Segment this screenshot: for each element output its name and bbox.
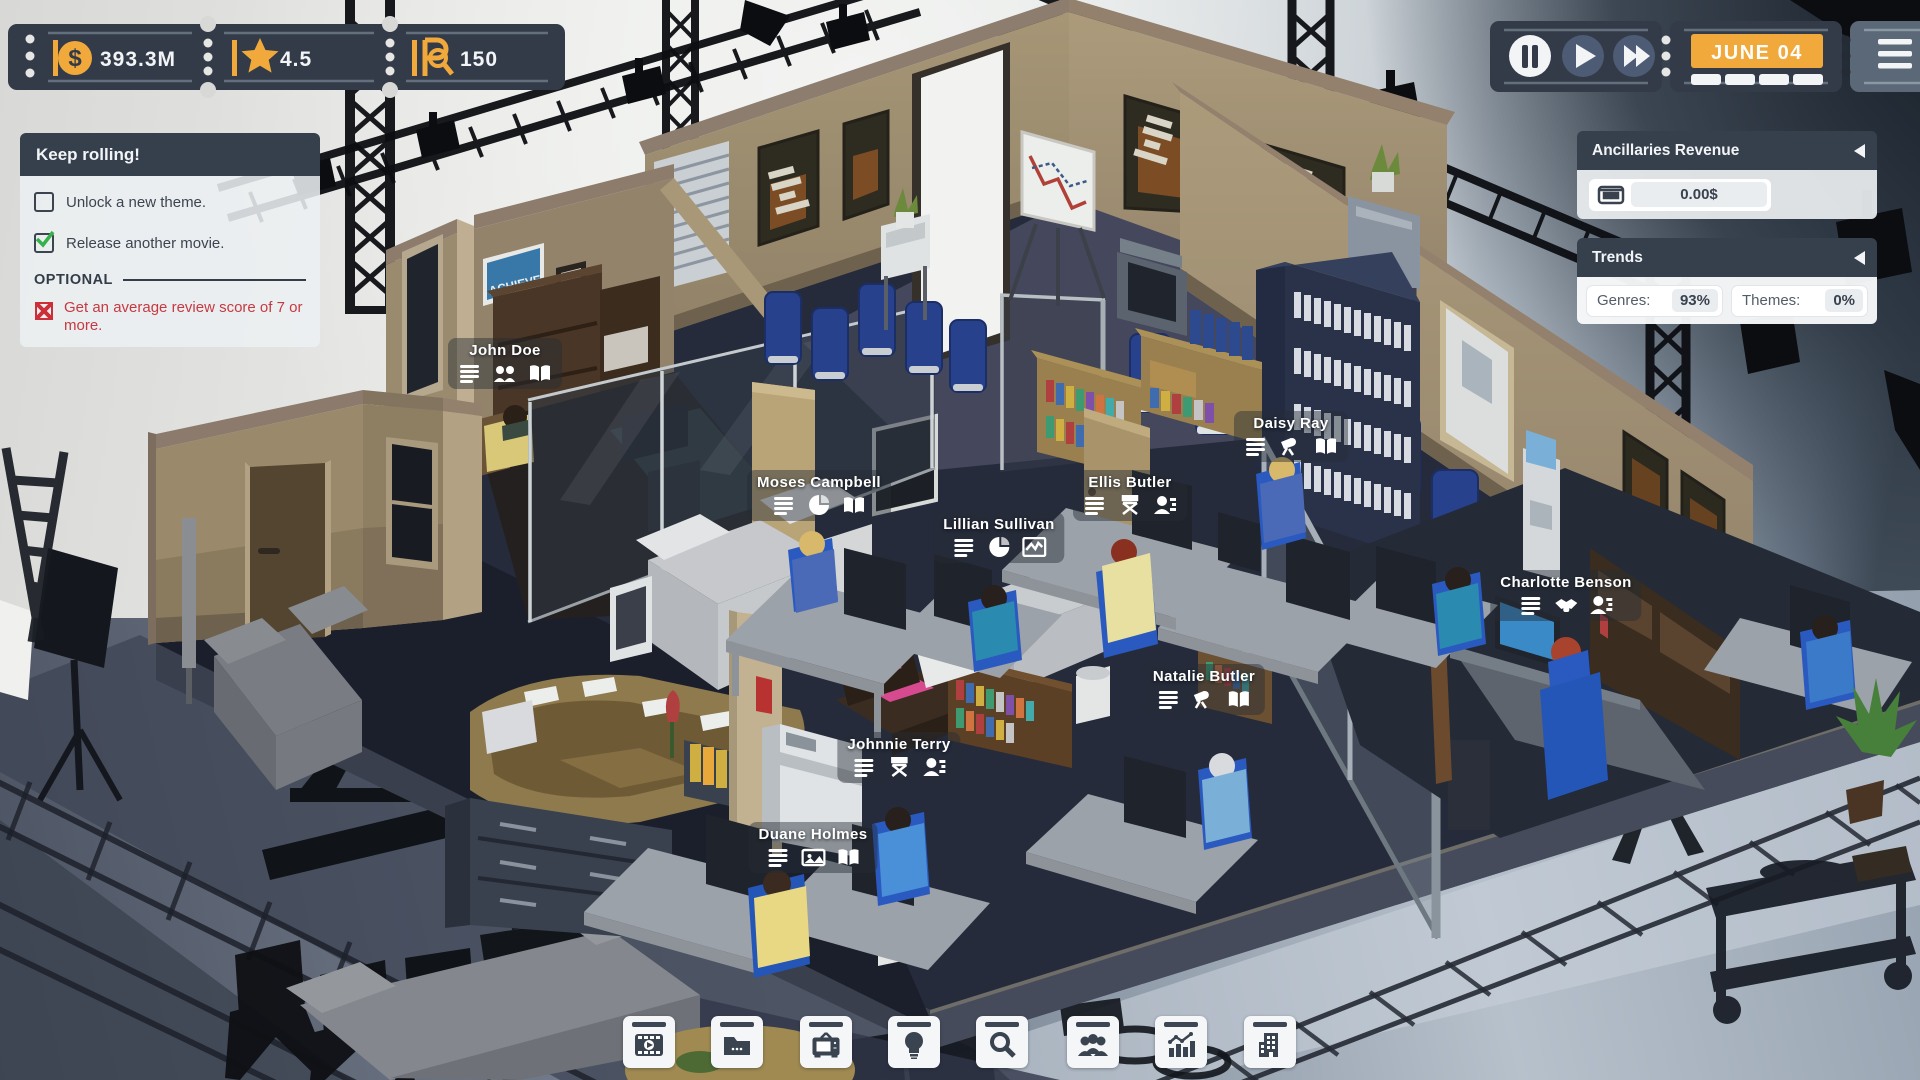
svg-text:JUNE 04: JUNE 04 bbox=[1711, 42, 1803, 64]
